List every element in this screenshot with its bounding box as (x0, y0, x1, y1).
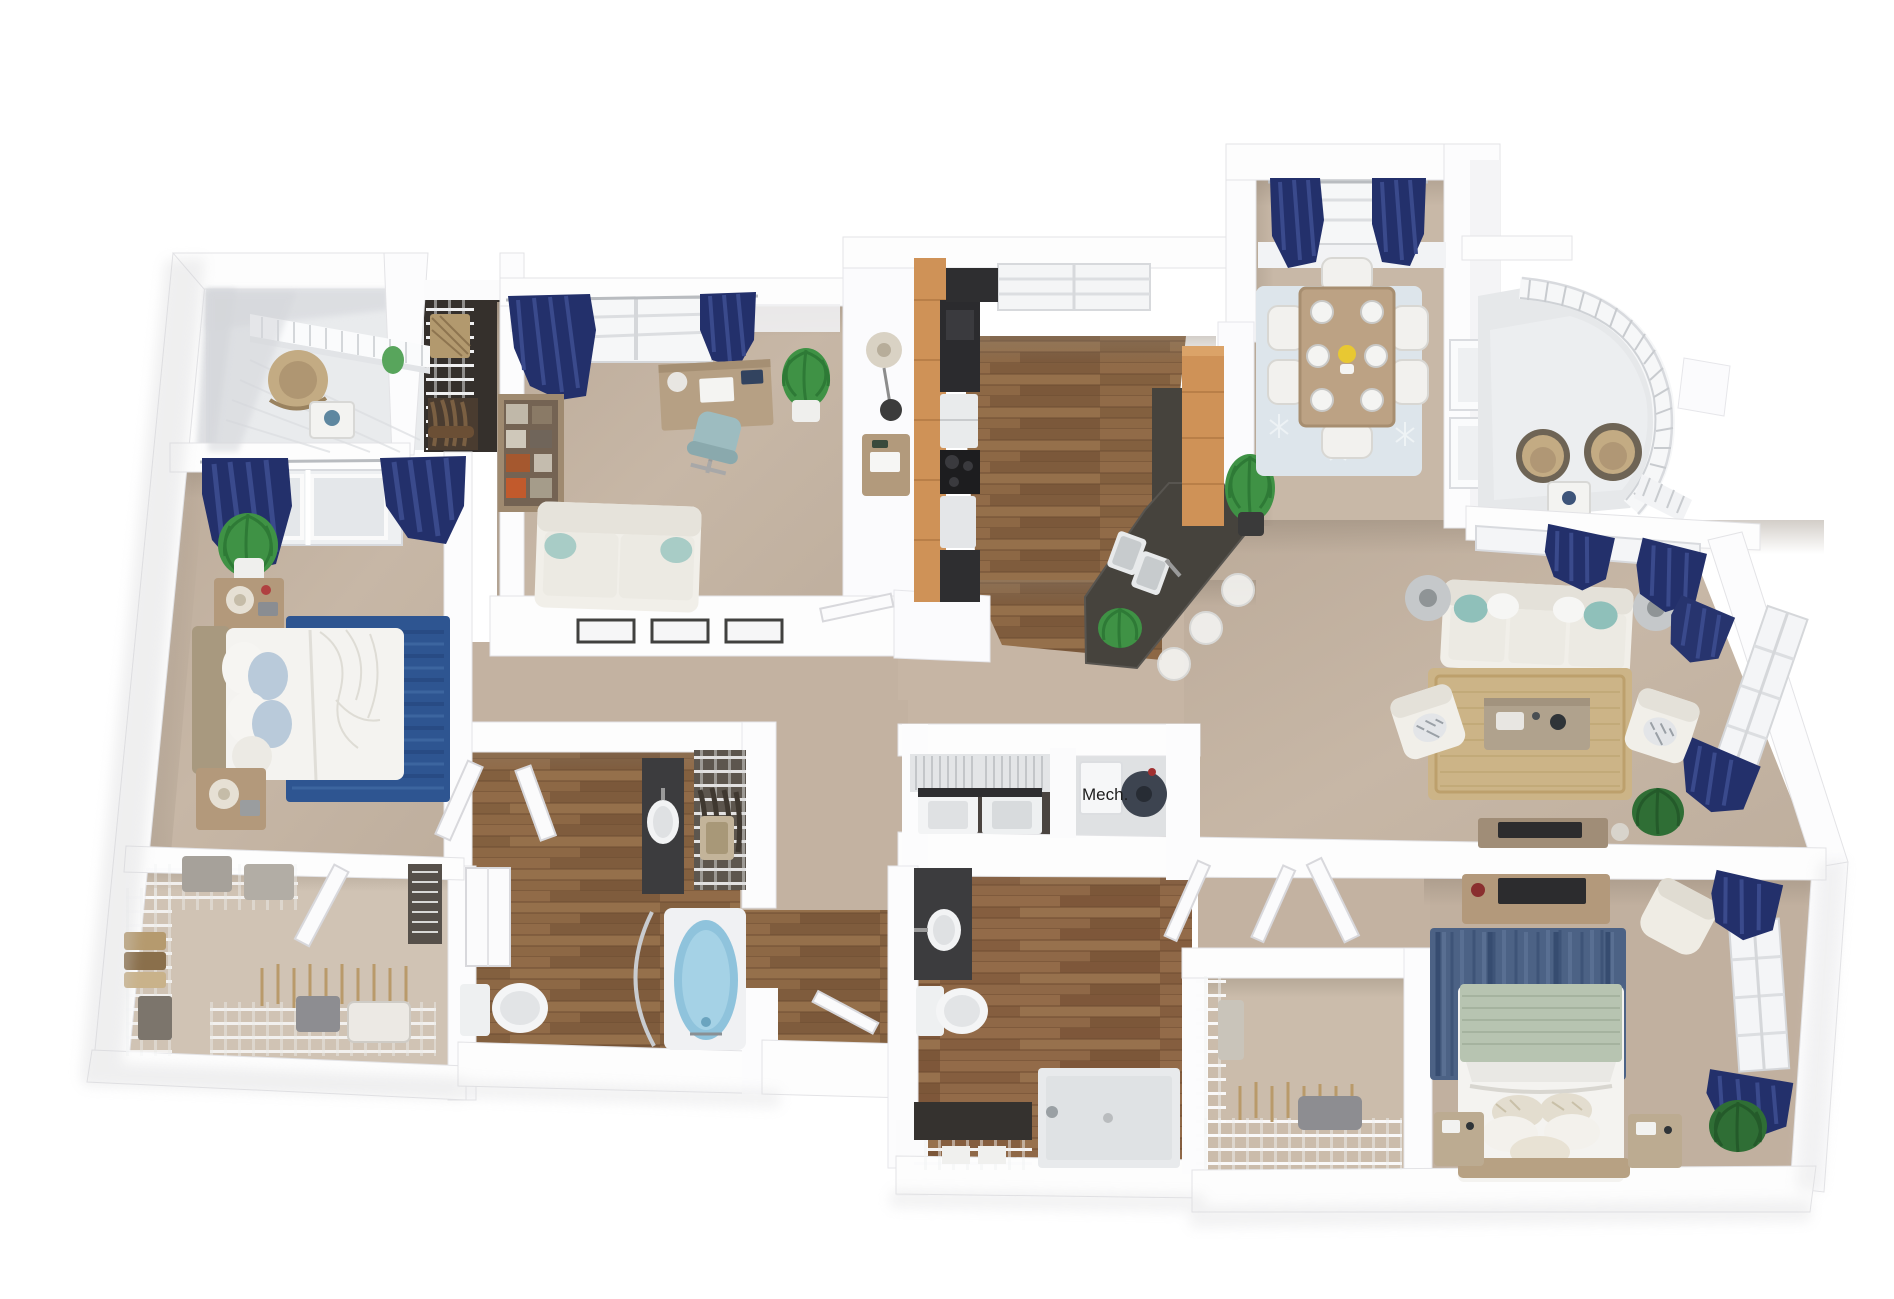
svg-text:Mech.: Mech. (1082, 785, 1128, 804)
